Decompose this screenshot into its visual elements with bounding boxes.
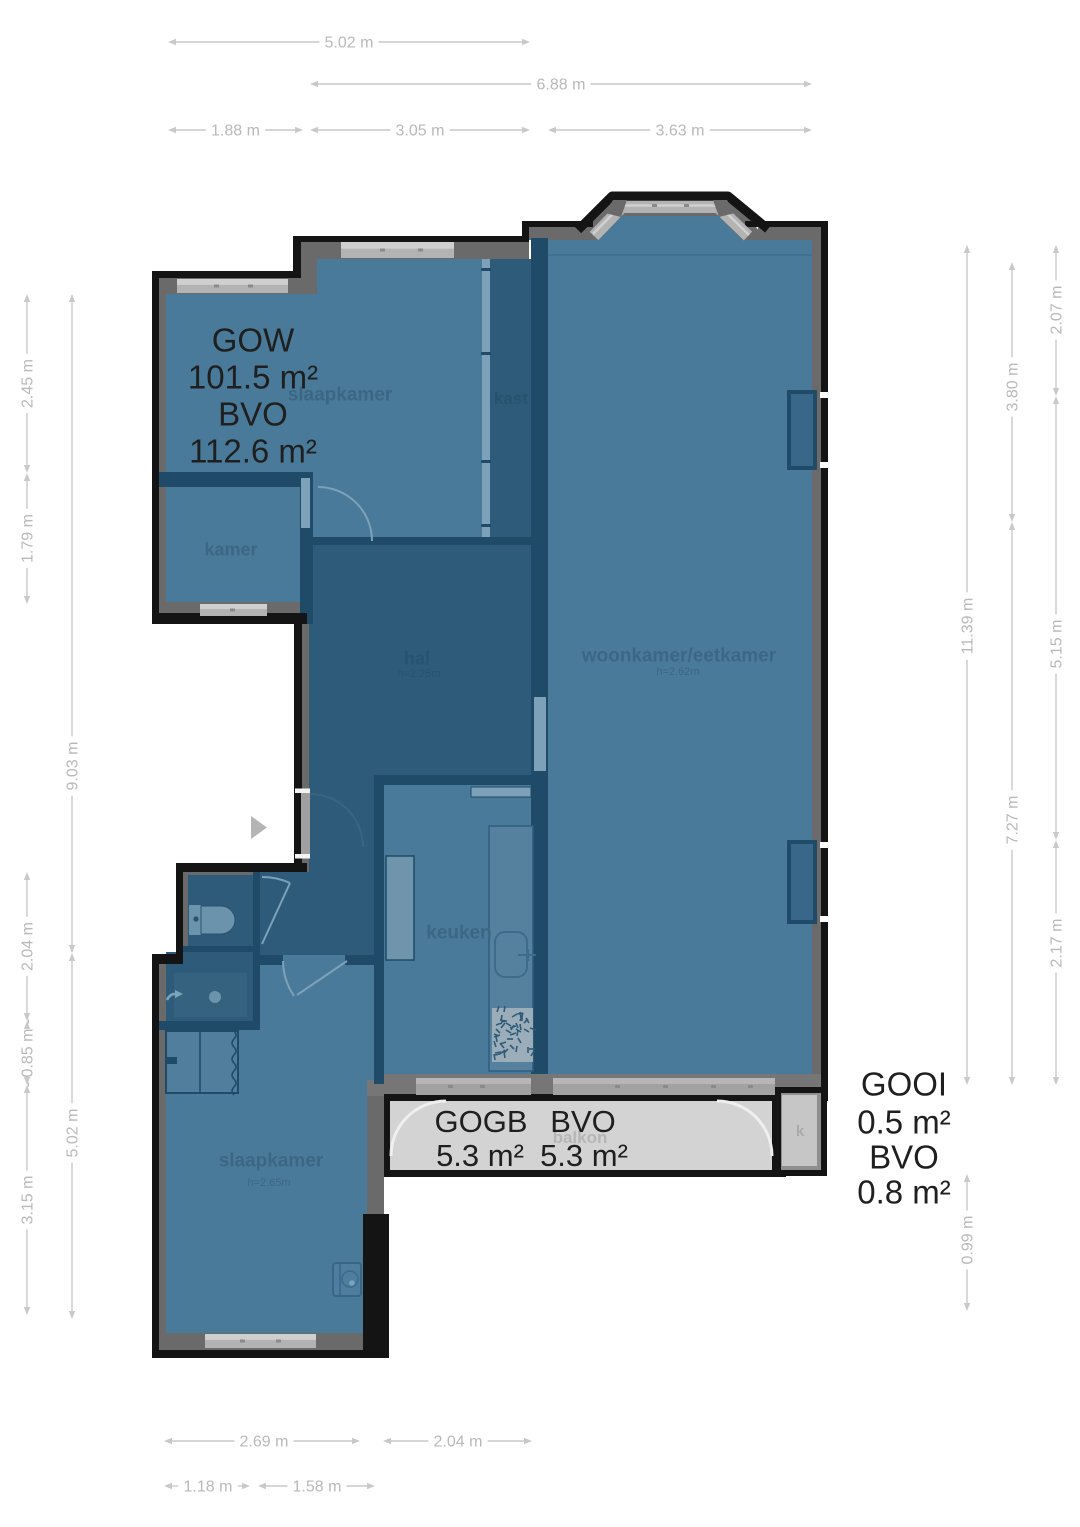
- svg-text:k: k: [796, 1123, 805, 1140]
- svg-text:3.15 m: 3.15 m: [20, 1176, 37, 1225]
- svg-text:9.03 m: 9.03 m: [65, 742, 82, 791]
- svg-text:5.3 m²: 5.3 m²: [540, 1138, 628, 1173]
- svg-text:h=2.62m: h=2.62m: [656, 666, 699, 678]
- svg-text:2.04 m: 2.04 m: [434, 1434, 483, 1451]
- svg-text:GOGB: GOGB: [434, 1104, 527, 1139]
- svg-text:slaapkamer: slaapkamer: [219, 1151, 324, 1172]
- svg-text:2.07 m: 2.07 m: [1049, 286, 1066, 335]
- svg-text:3.80 m: 3.80 m: [1005, 363, 1022, 412]
- svg-text:0.5 m²: 0.5 m²: [857, 1104, 951, 1141]
- svg-text:h=2.25m: h=2.25m: [397, 668, 440, 680]
- svg-text:0.8 m²: 0.8 m²: [857, 1174, 951, 1211]
- svg-text:3.05 m: 3.05 m: [396, 123, 445, 140]
- svg-text:2.04 m: 2.04 m: [20, 922, 37, 971]
- svg-text:keuken: keuken: [426, 923, 491, 944]
- svg-text:1.58 m: 1.58 m: [293, 1479, 342, 1496]
- svg-text:BVO: BVO: [218, 396, 288, 433]
- svg-text:1.79 m: 1.79 m: [20, 514, 37, 563]
- svg-text:6.88 m: 6.88 m: [537, 77, 586, 94]
- svg-text:3.63 m: 3.63 m: [656, 123, 705, 140]
- svg-text:5.15 m: 5.15 m: [1049, 620, 1066, 669]
- svg-text:0.99 m: 0.99 m: [960, 1216, 977, 1265]
- svg-text:BVO: BVO: [550, 1104, 615, 1139]
- svg-text:h=2.65m: h=2.65m: [247, 1177, 290, 1189]
- svg-text:2.45 m: 2.45 m: [20, 359, 37, 408]
- svg-text:5.02 m: 5.02 m: [65, 1109, 82, 1158]
- svg-text:hal: hal: [404, 648, 430, 668]
- svg-text:1.88 m: 1.88 m: [211, 123, 260, 140]
- svg-text:BVO: BVO: [869, 1139, 939, 1176]
- svg-text:woonkamer/eetkamer: woonkamer/eetkamer: [581, 646, 777, 667]
- svg-text:5.02 m: 5.02 m: [325, 35, 374, 52]
- svg-text:kast: kast: [494, 389, 528, 408]
- svg-text:- 0.85 m -: - 0.85 m -: [20, 1019, 37, 1087]
- svg-text:5.3 m²: 5.3 m²: [436, 1138, 524, 1173]
- svg-text:7.27 m: 7.27 m: [1005, 796, 1022, 845]
- svg-text:GOW: GOW: [212, 322, 295, 359]
- svg-text:kamer: kamer: [204, 539, 257, 559]
- svg-text:101.5 m²: 101.5 m²: [188, 359, 318, 396]
- svg-text:11.39 m: 11.39 m: [960, 598, 977, 655]
- svg-text:2.69 m: 2.69 m: [240, 1434, 289, 1451]
- svg-text:GOOI: GOOI: [861, 1066, 947, 1103]
- svg-text:1.18 m: 1.18 m: [184, 1479, 233, 1496]
- svg-text:112.6 m²: 112.6 m²: [189, 433, 317, 470]
- svg-text:2.17 m: 2.17 m: [1049, 919, 1066, 968]
